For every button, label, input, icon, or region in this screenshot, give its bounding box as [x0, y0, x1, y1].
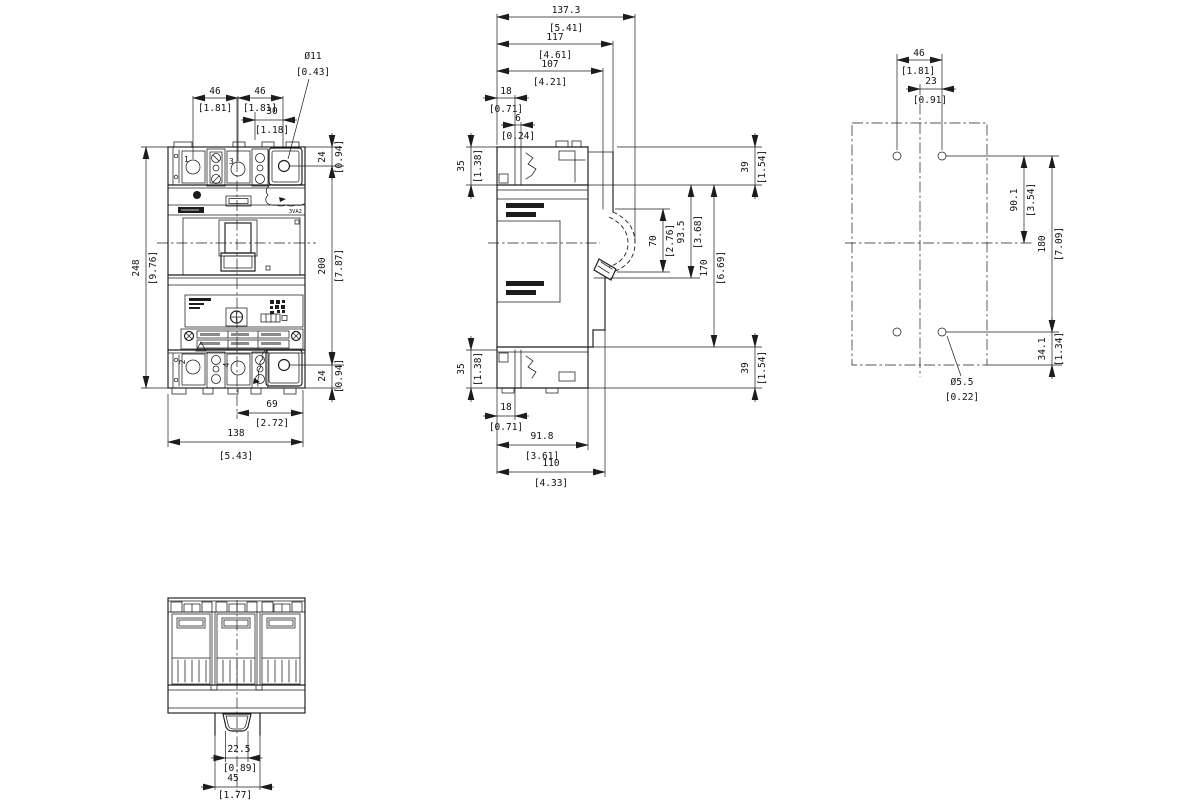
dim-width-mm: 138	[227, 428, 244, 439]
dim-drill-span-mm: 180	[1037, 235, 1048, 252]
front-view: 1 3 2 4 3VA2 46 [1.81] 46 [1.81] 30 [1.1…	[131, 51, 345, 462]
dim-drill-half-in: [0.91]	[913, 95, 947, 106]
dim-travel-in: [2.76]	[665, 224, 676, 258]
dim-depth110-mm: 110	[542, 458, 559, 469]
drill-hole-bottom-left	[893, 328, 901, 336]
dim-height-mm: 248	[131, 259, 142, 276]
pole-label-1: 1	[184, 155, 189, 164]
dim-top24-in: [0.94]	[334, 140, 345, 174]
dim-term-bot-mm: 18	[500, 402, 512, 413]
dim-body-h-mm: 170	[699, 259, 710, 276]
dim-front-h-in: [3.68]	[693, 215, 704, 249]
drill-hole-top-right	[938, 152, 946, 160]
dim-travel-mm: 70	[648, 235, 659, 247]
connector-icon	[261, 314, 280, 322]
side-view: 137.3 [5.41] 117 [4.61] 107 [4.21] 18 [0…	[456, 5, 768, 489]
dim-height-in: [9.76]	[148, 251, 159, 285]
bottom-escutcheon	[215, 713, 260, 735]
dim-drill-dia-mm: Ø5.5	[951, 377, 974, 388]
dim-z39-top-in: [1.54]	[757, 150, 768, 184]
dim-bot24-mm: 24	[317, 370, 328, 382]
dim-half-in: [2.72]	[255, 418, 289, 429]
dim-hole-off-in: [1.18]	[255, 125, 289, 136]
indicator-window	[226, 196, 251, 206]
dim-z39-bot-in: [1.54]	[757, 351, 768, 385]
technical-drawing: 1 3 2 4 3VA2 46 [1.81] 46 [1.81] 30 [1.1…	[0, 0, 1200, 800]
dim-hole-dia-mm: Ø11	[304, 51, 321, 62]
front-bottom-feet	[172, 388, 296, 394]
dim-base-mm: 91.8	[531, 431, 554, 442]
pole-label-4: 4	[222, 362, 231, 367]
dim-drill-lower-in: [1.34]	[1054, 332, 1065, 366]
dim-top24-mm: 24	[317, 151, 328, 163]
dim-span-mm: 200	[317, 257, 328, 274]
dim-z39-top-mm: 39	[740, 161, 751, 173]
handle-off-position	[594, 259, 616, 280]
dim-bot24-in: [0.94]	[334, 359, 345, 393]
dim-term-top-mm: 18	[500, 86, 512, 97]
dim-drill-upper-in: [3.54]	[1026, 183, 1037, 217]
dim-body-h-in: [6.69]	[716, 251, 727, 285]
side-top-terminal	[499, 147, 585, 185]
bottom-top-strip	[171, 602, 302, 612]
front-handle-area	[183, 218, 300, 275]
drilling-plan-view: 46 [1.81] 23 [0.91] 90.1 [3.54] 180 [7.0…	[845, 48, 1065, 403]
terminal-cover-collar-top	[269, 148, 302, 185]
product-mark: 3VA2	[289, 209, 302, 215]
side-front-cover	[588, 152, 635, 347]
handle-travel-arc-inner	[609, 217, 628, 267]
dim-drill-span-in: [7.09]	[1054, 227, 1065, 261]
dim-depth110-in: [4.33]	[534, 478, 568, 489]
pole-label-2: 2	[178, 359, 187, 364]
settings-strip	[181, 329, 303, 351]
dim-width-in: [5.43]	[219, 451, 253, 462]
dim-pitch-a-mm: 46	[209, 86, 221, 97]
dim-drill-lower-mm: 34.1	[1037, 337, 1048, 360]
dim-total-mm: 137.3	[552, 5, 581, 16]
drill-hole-bottom-right	[938, 328, 946, 336]
dim-esc-mm: 45	[227, 773, 238, 784]
dim-gap-in: [0.24]	[501, 131, 535, 142]
dim-drill-pitch-mm: 46	[913, 48, 925, 59]
front-mid-band	[178, 191, 299, 224]
leader-drill-dia	[947, 336, 961, 376]
dim-t35-bot-in: [1.38]	[473, 352, 484, 386]
dim-cover-mm: 107	[541, 59, 558, 70]
dim-z39-bot-mm: 39	[740, 362, 751, 374]
dim-hole-off-mm: 30	[266, 106, 278, 117]
drill-dimensions: 46 [1.81] 23 [0.91] 90.1 [3.54] 180 [7.0…	[897, 48, 1065, 403]
bottom-pole-chambers	[172, 612, 300, 685]
rating-label	[185, 295, 303, 327]
drill-hole-top-left	[893, 152, 901, 160]
dim-front-h-mm: 93.5	[676, 221, 687, 244]
breaker-outline-phantom	[852, 123, 987, 365]
dim-esc-in: [1.77]	[218, 790, 252, 800]
dim-esc-mm: 117	[546, 32, 563, 43]
bottom-view: 22.5 [0.89] 45 [1.77]	[168, 598, 305, 800]
bottom-dimensions: 22.5 [0.89] 45 [1.77]	[201, 731, 274, 800]
dim-cover-in: [4.21]	[533, 77, 567, 88]
dim-t35-top-in: [1.38]	[473, 149, 484, 183]
terminal-4-hole	[231, 361, 245, 375]
dim-t35-top-mm: 35	[456, 160, 467, 171]
side-din-clamps	[497, 203, 560, 302]
pole-label-3: 3	[229, 157, 234, 166]
terminal-cover-collar-bottom	[266, 350, 302, 386]
dim-drill-upper-mm: 90.1	[1009, 188, 1020, 211]
dim-term-bot-in: [0.71]	[489, 422, 523, 433]
terminal-2-hole	[186, 360, 200, 374]
side-dimensions: 137.3 [5.41] 117 [4.61] 107 [4.21] 18 [0…	[456, 5, 768, 489]
bottom-body-outline	[168, 598, 305, 713]
dim-cutout-mm: 22.5	[228, 744, 251, 755]
dim-drill-half-mm: 23	[925, 76, 936, 87]
mounting-hole-bottom	[279, 360, 290, 371]
toggle-handle	[225, 223, 251, 253]
dim-half-mm: 69	[266, 399, 278, 410]
side-bottom-terminal	[499, 350, 575, 388]
front-dimensions: 46 [1.81] 46 [1.81] 30 [1.18] Ø11 [0.43]…	[131, 51, 345, 462]
break-line-top	[266, 186, 304, 206]
dim-pitch-b-mm: 46	[254, 86, 266, 97]
dim-drill-dia-in: [0.22]	[945, 392, 979, 403]
test-button	[193, 191, 201, 199]
dim-pitch-a-in: [1.81]	[198, 103, 232, 114]
mounting-hole-top	[279, 161, 290, 172]
dim-t35-bot-mm: 35	[456, 363, 467, 374]
qr-code	[270, 300, 285, 314]
dim-gap-mm: 6	[515, 113, 521, 124]
dim-span-in: [7.87]	[334, 249, 345, 283]
dim-hole-dia-in: [0.43]	[296, 67, 330, 78]
front-bottom-terminals	[173, 350, 302, 388]
